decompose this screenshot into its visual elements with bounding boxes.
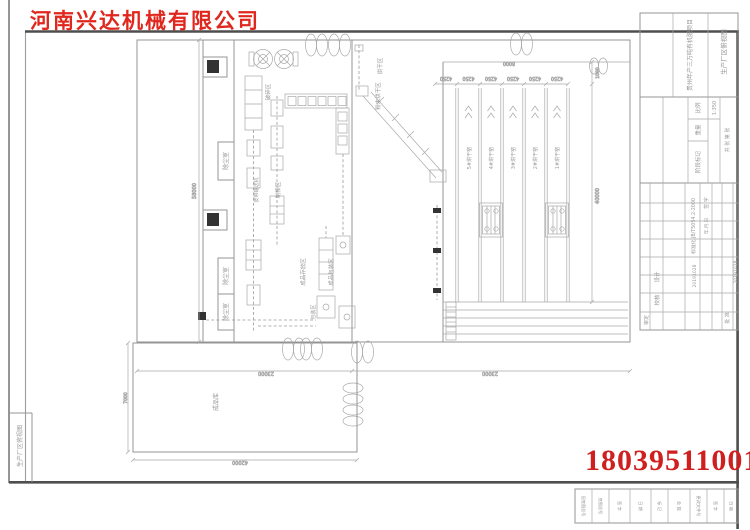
stage-label: 阶段标记 <box>694 151 702 174</box>
strip-label: 标 记 <box>656 501 663 512</box>
standard-code: 标准化 JB/T5054.2-2000 <box>690 198 697 254</box>
door-symbols <box>283 33 608 426</box>
dim-42000: 42000 <box>232 459 248 465</box>
wall-fan-icon <box>203 57 227 77</box>
dim-40000: 40000 <box>595 188 601 204</box>
dim-4250: 4250 <box>440 75 452 81</box>
dim-4250: 4250 <box>529 75 541 81</box>
door-icon <box>343 405 363 426</box>
kiln-label: 4#烘干窑 <box>488 147 495 169</box>
crusher-line <box>245 76 262 332</box>
main-building <box>137 40 630 342</box>
area-label-powder: 粉末烘干区 <box>374 82 382 110</box>
phone-number: 18039511001 <box>585 444 750 478</box>
dust-room-1: 除尘室 <box>218 142 234 180</box>
dust-room-label: 除尘室 <box>222 152 230 170</box>
revision-strip: 旧底图总号 底图总号 签 字 日 期 标 记 处 数 更改文件号 签 字 日 期 <box>575 489 738 523</box>
design-label: 设计 <box>653 271 661 283</box>
company-name: 河南兴达机械有限公司 <box>30 5 260 35</box>
flow-arrow-icon <box>465 106 561 118</box>
sign-label: 签 字 <box>703 197 710 209</box>
trolley <box>546 203 569 237</box>
approve-label: 批 准 <box>724 312 731 324</box>
dust-room-label: 除尘室 <box>222 303 230 321</box>
area-label-belt: 皮带输送机 <box>253 177 260 202</box>
inclined-conveyor <box>355 45 446 182</box>
title-block: 贵州年产三万吨有机肥项目 生产厂区俯视图 比例 1:350 重量 阶段标记 共 … <box>640 13 739 330</box>
kiln-label: 5#烘干窑 <box>466 147 473 169</box>
dim-23000: 23000 <box>258 370 274 376</box>
strip-label: 更改文件号 <box>695 496 702 517</box>
area-label-crush: 破碎区 <box>264 83 272 100</box>
drawing-title: 生产厂区俯视图 <box>719 29 728 75</box>
area-label-dry: 烘干区 <box>376 57 384 74</box>
area-label-pack: 成品包装区 <box>327 258 335 286</box>
door-icon <box>352 341 374 363</box>
dim-8000: 8000 <box>503 60 515 66</box>
trolley <box>480 203 503 237</box>
dim-1000: 1000 <box>595 67 601 79</box>
date-value: 20191028 <box>692 264 698 287</box>
kiln-lanes <box>456 88 569 302</box>
kiln-label: 3#烘干窑 <box>510 147 517 169</box>
corner-title-box: 生产厂区俯视图 <box>9 413 32 482</box>
strip-label: 处 数 <box>676 501 683 512</box>
sheets-label: 共 张 第 张 <box>724 128 731 153</box>
door-icon <box>511 33 533 55</box>
warehouse: 成品库 <box>133 343 357 452</box>
door-icon <box>283 338 305 360</box>
dust-room-3: 除尘室 <box>218 294 234 330</box>
drying-area: 烘干区 粉末烘干区 5#烘干窑 4#烘干窑 3#烘干窑 2#烘干窑 1#烘干窑 <box>355 45 628 340</box>
date-value: 20191028 <box>733 260 739 283</box>
wall-fan-icon <box>203 210 227 230</box>
kiln-label: 2#烘干窑 <box>532 147 539 169</box>
scale-label: 比例 <box>694 102 702 114</box>
door-icon <box>306 34 328 56</box>
kiln-label: 1#烘干窑 <box>554 147 561 169</box>
listing-image: 生产厂区俯视图 除尘室 除尘室 除尘室 <box>0 0 750 530</box>
left-workshop: 除尘室 除尘室 除尘室 <box>198 50 355 333</box>
strip-label: 签 字 <box>617 501 623 511</box>
door-icon <box>301 338 323 360</box>
check-label: 校核 <box>653 294 661 306</box>
weight-label: 重量 <box>694 124 702 136</box>
corner-title: 生产厂区俯视图 <box>16 425 24 467</box>
loading-platform <box>443 302 628 340</box>
dim-4250: 4250 <box>485 75 497 81</box>
hopper-battery <box>285 94 350 254</box>
strip-label: 日 期 <box>728 501 734 511</box>
scale-value: 1:350 <box>712 101 718 115</box>
dim-7000: 7000 <box>123 392 129 404</box>
conveyor-line <box>270 96 284 245</box>
area-label-store: 成品存放区 <box>299 258 307 286</box>
area-label-pack2: 包装区 <box>310 304 317 319</box>
area-label-rod: 制棒区 <box>274 181 282 198</box>
strip-label: 旧底图总号 <box>580 496 587 517</box>
strip-label: 日 期 <box>637 501 643 511</box>
dust-room-label: 除尘室 <box>222 267 230 285</box>
door-icon <box>343 383 363 404</box>
dim-4250: 4250 <box>507 75 519 81</box>
dim-4250: 4250 <box>551 75 563 81</box>
strip-label: 签 字 <box>713 501 719 511</box>
feed-chain <box>433 205 441 300</box>
strip-label: 底图总号 <box>597 498 604 515</box>
dim-4250: 4250 <box>462 75 474 81</box>
review-label: 审定 <box>643 315 650 325</box>
twin-rollers-icon <box>249 50 298 69</box>
date-label: 年.月.日 <box>703 218 710 234</box>
dust-room-2: 除尘室 <box>218 258 234 294</box>
dim-23000: 23000 <box>482 370 498 376</box>
project-name: 贵州年产三万吨有机肥项目 <box>686 19 694 91</box>
dim-58000: 58000 <box>192 183 198 199</box>
door-icon <box>329 34 351 56</box>
warehouse-label: 成品库 <box>212 393 220 411</box>
